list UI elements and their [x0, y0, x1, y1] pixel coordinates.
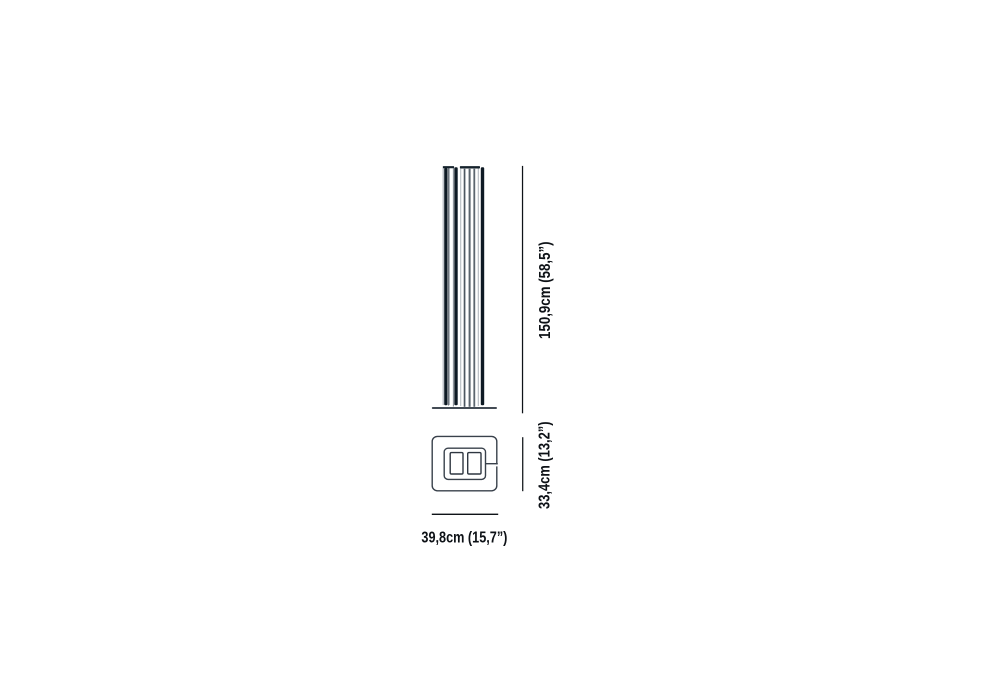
svg-text:39,8cm (15,7”): 39,8cm (15,7”)	[421, 529, 507, 546]
svg-text:33,4cm (13,2”): 33,4cm (13,2”)	[537, 421, 554, 509]
svg-text:150,9cm (58,5”): 150,9cm (58,5”)	[537, 241, 554, 339]
